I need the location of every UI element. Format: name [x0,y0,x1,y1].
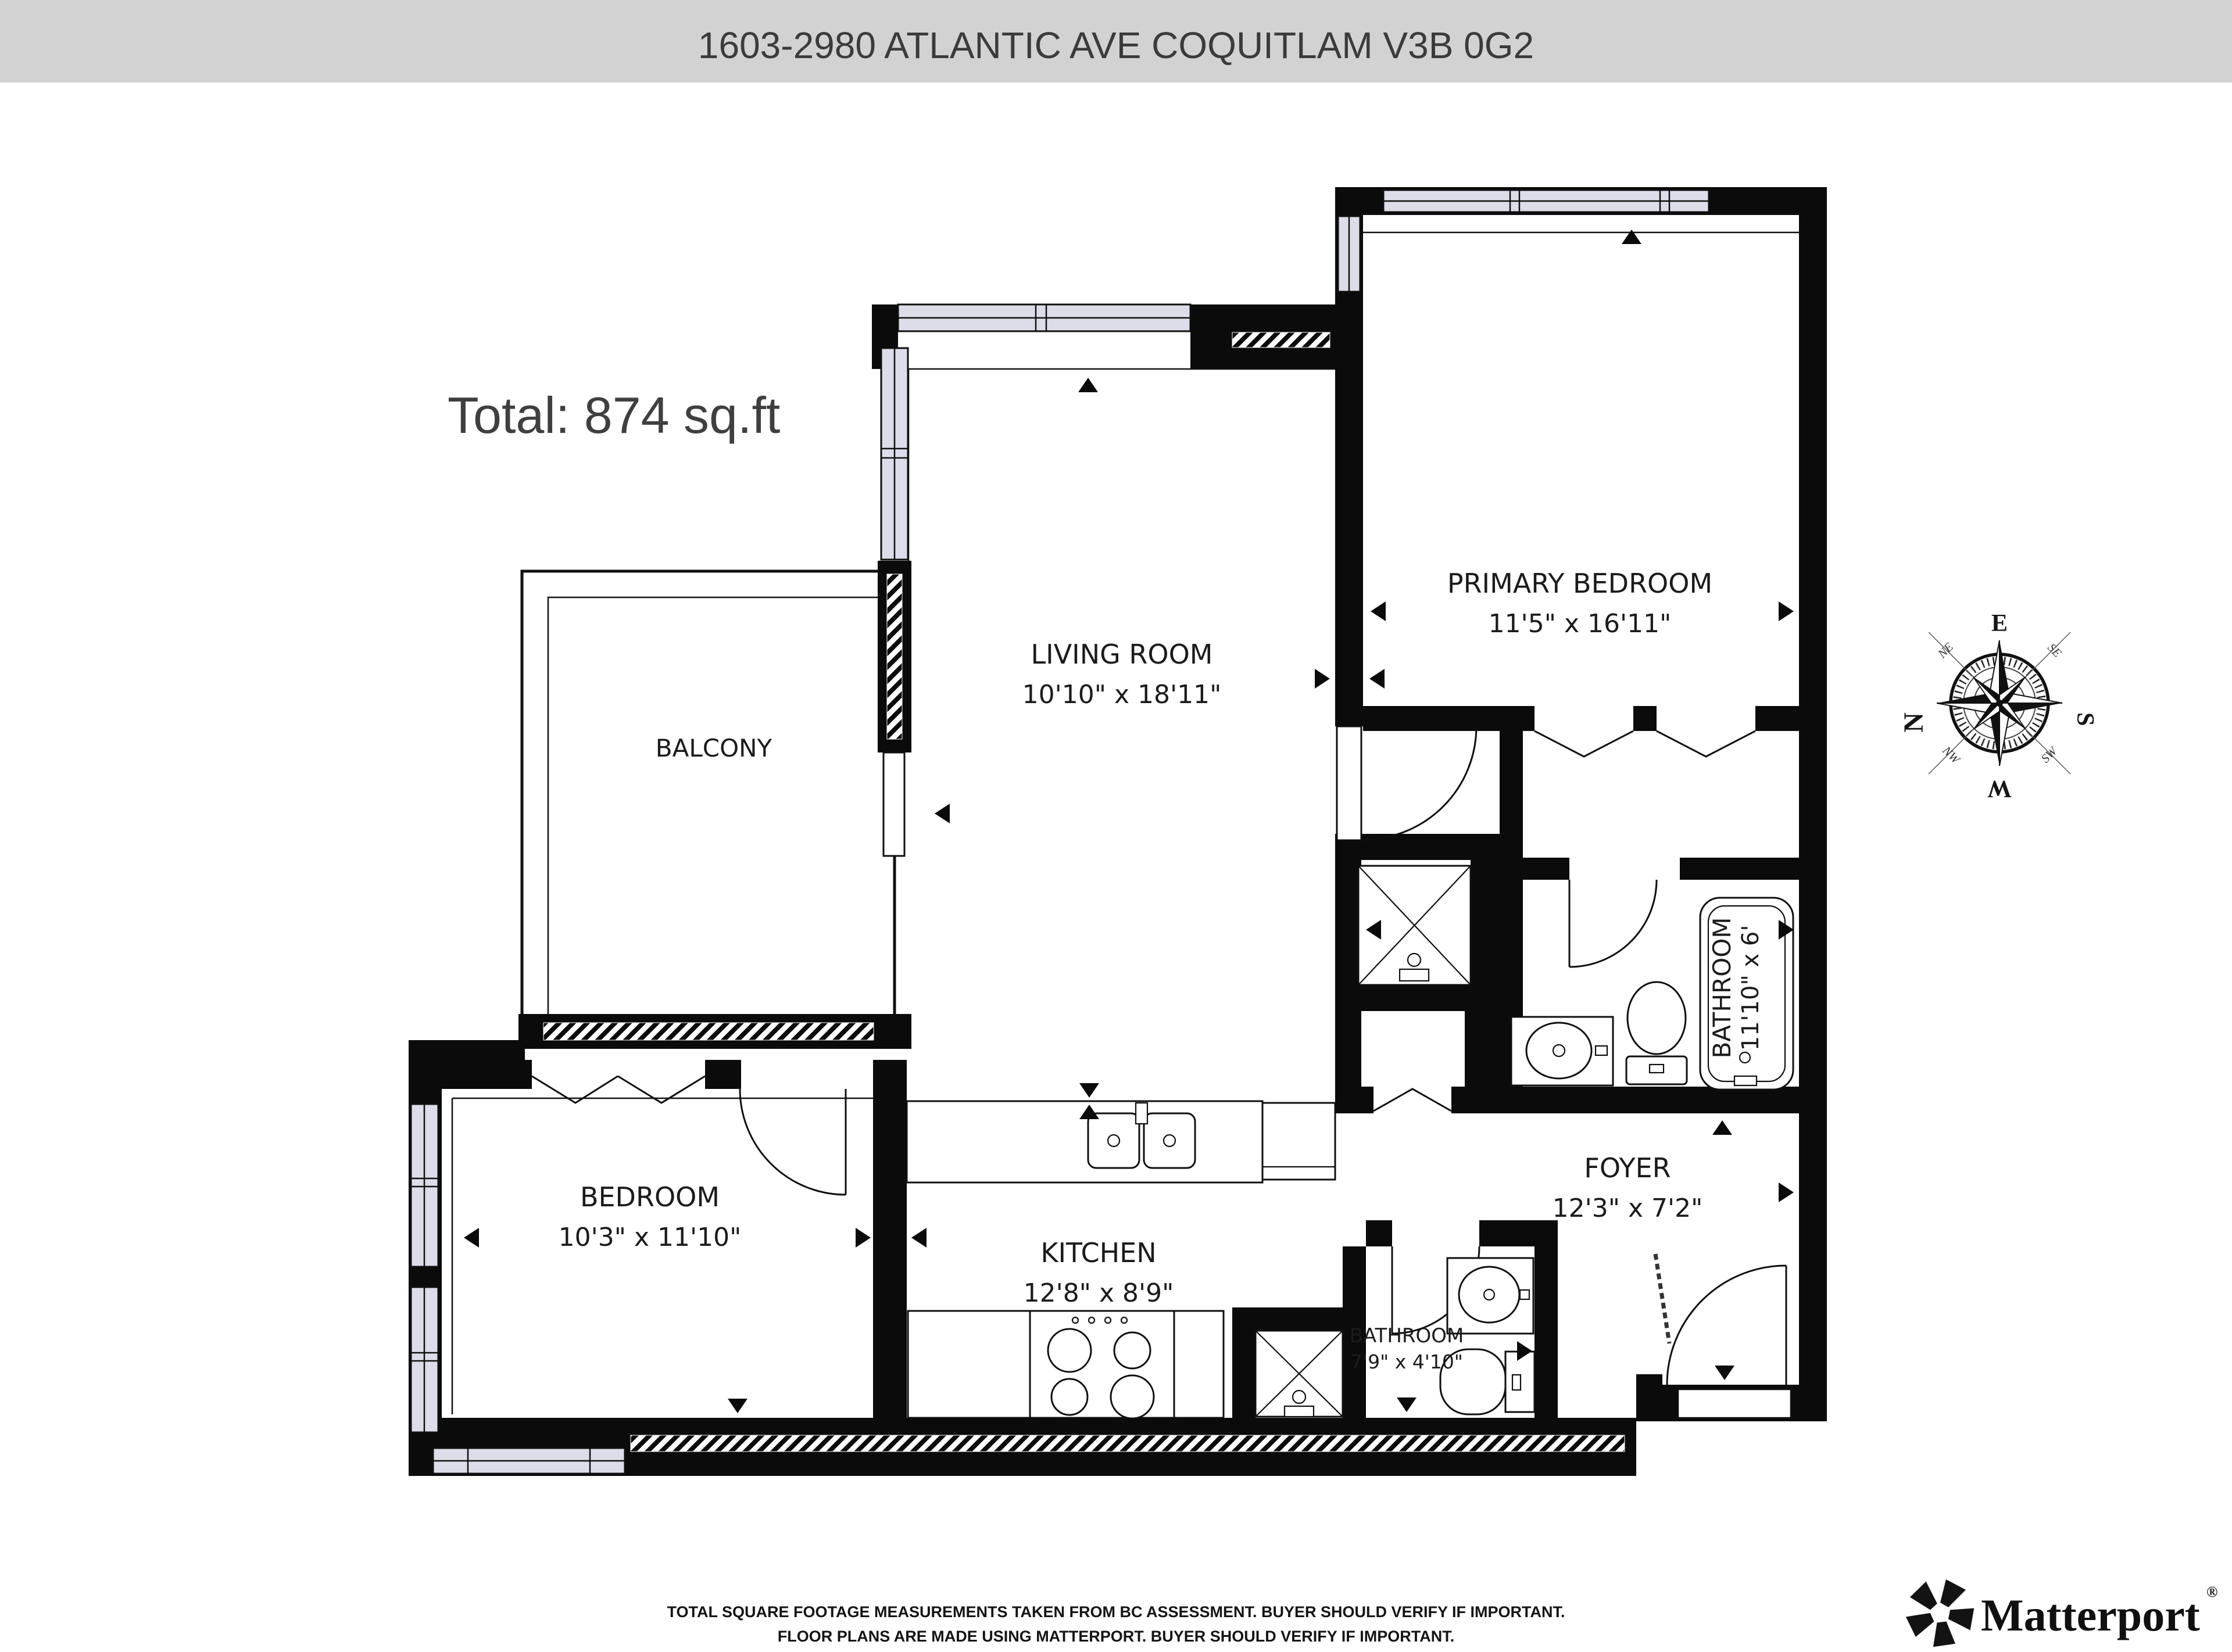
compass-west-label: W [1987,775,2012,802]
foyer-closet-door [1373,1089,1451,1111]
matterport-registered-mark: ® [2206,1583,2217,1600]
label-bathroom-small: BATHROOM [1350,1324,1464,1348]
entry-threshold [1678,1389,1791,1418]
compass-ne-label: NE [1934,640,1956,661]
primary-closet-door-1 [1535,731,1633,757]
label-kitchen: KITCHEN [1040,1237,1156,1268]
label-living-room: LIVING ROOM [1031,639,1213,670]
bathroom-small-faucet [1520,1290,1529,1299]
label-balcony: BALCONY [656,734,772,762]
balcony-outline [522,571,895,1016]
shower-head-icon [1293,1391,1305,1403]
kitchen-faucet [1136,1103,1147,1124]
shower-head-icon [1408,954,1421,966]
bathroom-main-door-arc [1569,880,1657,967]
compass-south-label: S [2072,712,2098,726]
stove-burner [1114,1332,1150,1368]
compass-rose-icon: E S W N NE SE NW SW [1898,610,2098,802]
stove-burner [1048,1329,1091,1372]
dims-foyer: 12'3" x 7'2" [1553,1194,1703,1223]
compass-sw-label: SW [2038,743,2061,766]
dims-bedroom: 10'3" x 11'10" [559,1223,742,1252]
dims-living-room: 10'10" x 18'11" [1022,680,1222,709]
kitchen-counter-right [1174,1311,1224,1418]
stove-burner [1051,1379,1088,1415]
label-foyer: FOYER [1584,1152,1671,1184]
compass-east-label: E [1991,610,2008,637]
page-title: 1603-2980 ATLANTIC AVE COQUITLAM V3B 0G2 [698,24,1534,66]
total-area-label: Total: 874 sq.ft [448,386,780,444]
bathtub-faucet [1734,1076,1757,1085]
bathroom-main-toilet-bowl [1628,982,1686,1054]
bedroom-door-arc [740,1089,846,1195]
dims-primary-bedroom: 11'5" x 16'11" [1489,609,1672,639]
primary-bedroom-door-leaf [1337,726,1361,840]
disclaimer-line-2: FLOOR PLANS ARE MADE USING MATTERPORT. B… [778,1628,1455,1645]
dims-bathroom-small: 7'9" x 4'10" [1350,1350,1463,1373]
foyer-slider-door [1655,1254,1669,1343]
disclaimer-line-1: TOTAL SQUARE FOOTAGE MEASUREMENTS TAKEN … [667,1603,1565,1621]
label-bedroom: BEDROOM [580,1181,720,1213]
kitchen-fridge [1262,1103,1335,1180]
bathtub-drain [1740,1052,1750,1063]
dims-kitchen: 12'8" x 8'9" [1024,1278,1174,1308]
balcony-door [884,752,904,856]
matterport-logo-icon [1900,1578,1980,1652]
compass-se-label: SE [2045,640,2065,660]
label-bathroom-main: BATHROOM [1708,917,1736,1058]
kitchen-counter-left [908,1311,1030,1418]
stove-burner [1111,1375,1154,1418]
compass-nw-label: NW [1940,743,1964,768]
bathroom-main-faucet [1596,1046,1607,1055]
compass-north-label: N [1898,712,1929,733]
primary-bedroom-door-arc [1363,726,1476,840]
floorplan-canvas: 1603-2980 ATLANTIC AVE COQUITLAM V3B 0G2… [0,0,2232,1652]
room-labels: PRIMARY BEDROOM 11'5" x 16'11" LIVING RO… [559,568,1764,1373]
primary-closet-door-2 [1657,731,1755,757]
dims-bathroom-main: 11'10" x 6' [1737,925,1764,1051]
label-primary-bedroom: PRIMARY BEDROOM [1447,568,1712,599]
matterport-wordmark: Matterport [1981,1590,2200,1640]
matterport-logo: Matterport ® [1900,1578,2217,1652]
